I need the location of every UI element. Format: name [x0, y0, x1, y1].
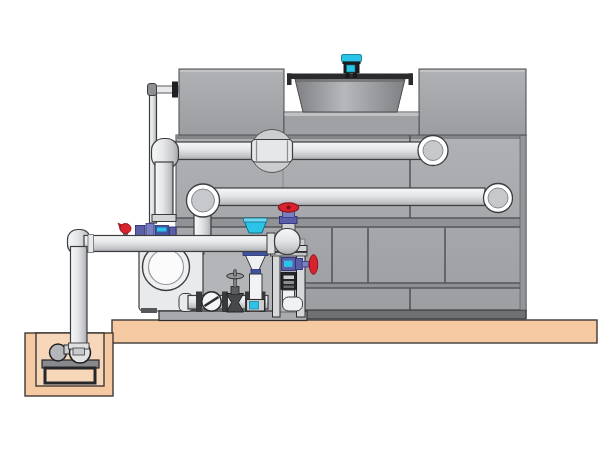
riser-tube [155, 162, 173, 220]
lower-pipe-end-elbow-core [488, 188, 508, 208]
mini-valve-body [120, 224, 131, 234]
makeup-wall-flange [172, 82, 178, 98]
red-mini-valve [118, 223, 132, 238]
gate-valve-bonnet [231, 287, 239, 295]
side-red-handwheel [309, 255, 317, 275]
pipe-collar [88, 235, 94, 253]
horizontal-seam-band [176, 218, 526, 227]
diagram-canvas [0, 0, 600, 450]
fan-shroud [287, 74, 413, 113]
check-valve [202, 292, 222, 312]
pump-inlet-eye [149, 250, 184, 285]
upper-pipe-end-elbow-core [423, 141, 443, 161]
gate-valve-knob [233, 269, 237, 273]
motor-window [347, 65, 356, 72]
upper-pipe-tube [168, 142, 430, 160]
tower-elbow-bend [283, 297, 303, 311]
riser-pipe [152, 162, 176, 222]
tower-right-edge [520, 135, 526, 310]
side-valve-stem [302, 262, 309, 268]
lower-pipe-left-elbow-core [192, 189, 215, 212]
rim-tab-left [287, 74, 292, 86]
fan-deck-lip [285, 113, 419, 117]
motor-band [343, 62, 361, 65]
ground [25, 320, 597, 396]
pump-foot [141, 308, 157, 313]
top-right-panel [419, 69, 526, 135]
cooling-tower-diagram [0, 0, 600, 450]
rim-tab-right [409, 74, 414, 86]
frame-rail-left [273, 248, 281, 318]
controller-display [284, 276, 295, 280]
lower-pipe-tube [203, 188, 485, 206]
sump-discharge-pipe [69, 247, 90, 356]
sump-pit [25, 333, 113, 396]
side-valve-body [296, 259, 303, 270]
shroud-drum [295, 79, 405, 112]
end-flange [267, 233, 275, 254]
drain-pipe [250, 274, 263, 301]
stand-frame [45, 368, 95, 383]
pipe-coupling [252, 140, 293, 163]
top-left-panel [179, 69, 284, 135]
controller-slot [284, 286, 295, 289]
sump-riser-tube [71, 247, 88, 349]
controller-slot [284, 281, 295, 284]
sump-riser-stub [73, 348, 85, 355]
shroud-rim [287, 74, 413, 80]
riser-flange [152, 215, 176, 222]
under-panel-shadow [176, 135, 526, 139]
makeup-elbow-cap [148, 84, 157, 96]
tundish-cap-top [244, 218, 268, 222]
handwheel-hub [287, 206, 291, 210]
discharge-end-elbow [275, 229, 301, 255]
solenoid-window [284, 261, 293, 268]
meter-window [157, 228, 167, 232]
concrete-slab [112, 320, 597, 343]
motor-cap [342, 55, 362, 63]
drain-base-window [250, 302, 259, 310]
discharge-tube [84, 236, 274, 252]
blue-fitting [136, 226, 146, 237]
